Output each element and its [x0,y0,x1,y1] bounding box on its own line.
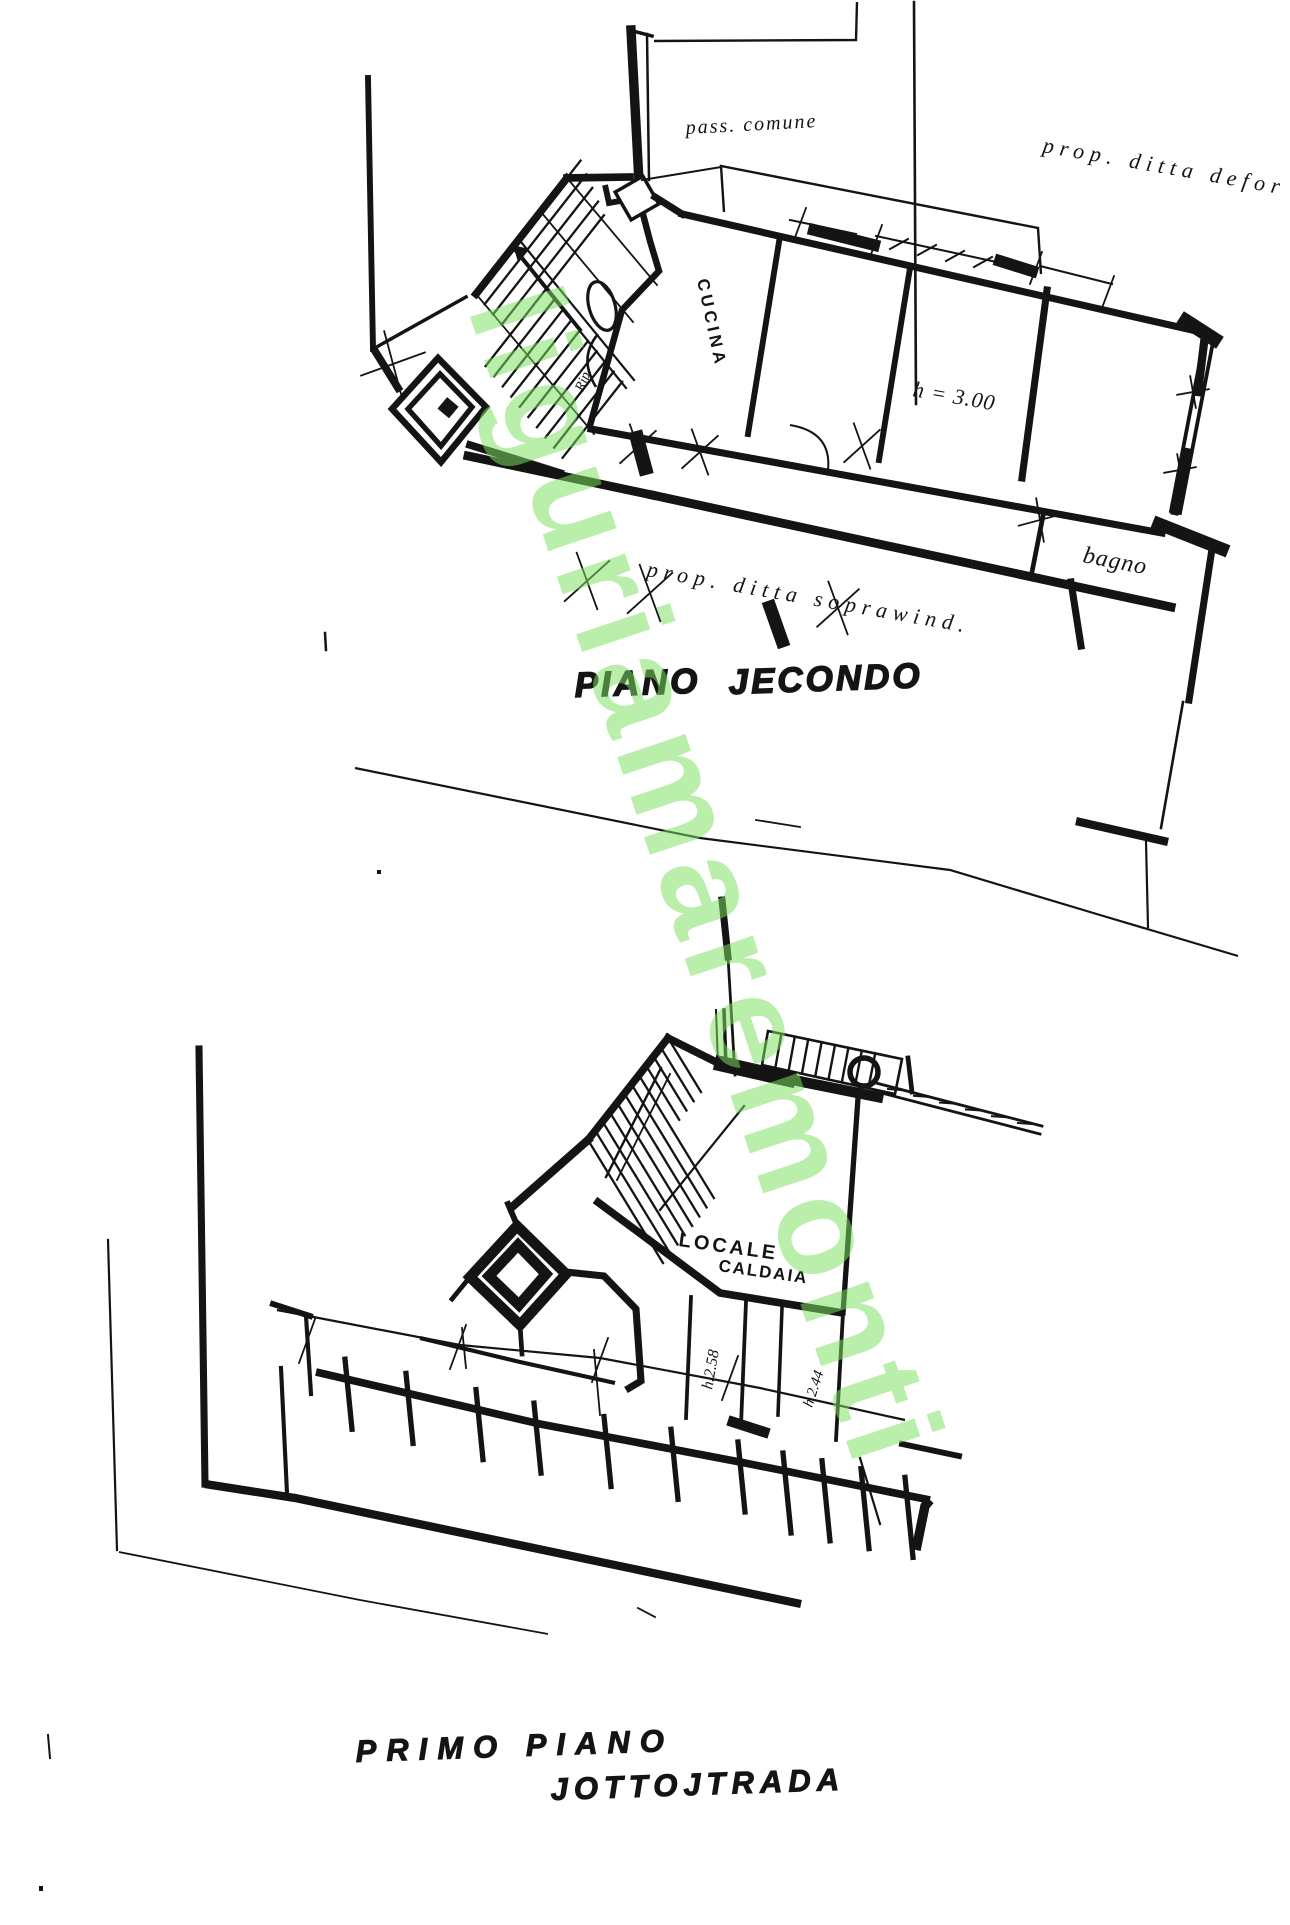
svg-text:JECONDO: JECONDO [728,656,923,702]
